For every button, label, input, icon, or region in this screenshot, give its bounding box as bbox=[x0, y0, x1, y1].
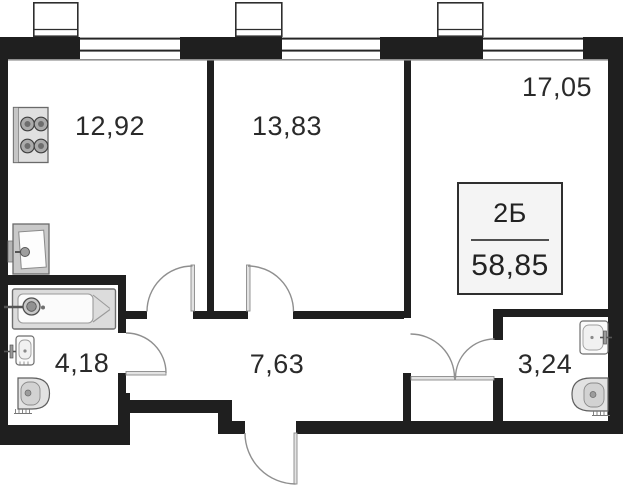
wall bbox=[118, 275, 126, 333]
vent-box-icon bbox=[34, 3, 78, 36]
living-room-door bbox=[411, 334, 455, 380]
apartment-total-area: 58,85 bbox=[459, 251, 561, 281]
wall bbox=[493, 309, 623, 317]
wall bbox=[380, 37, 483, 59]
vent-box-icon bbox=[236, 3, 282, 36]
wall bbox=[193, 311, 248, 319]
stove-icon bbox=[14, 108, 49, 163]
info-box-divider bbox=[471, 239, 549, 241]
wall bbox=[0, 37, 80, 59]
entrance-door bbox=[245, 433, 297, 484]
area-label-hallway: 7,63 bbox=[225, 351, 329, 378]
window-sill-line bbox=[8, 59, 608, 61]
wc-door bbox=[456, 339, 495, 380]
wall bbox=[608, 37, 623, 434]
area-label-living-room: 17,05 bbox=[505, 74, 609, 101]
kitchen-door bbox=[147, 265, 195, 312]
area-label-bedroom: 13,83 bbox=[235, 113, 339, 140]
wall bbox=[180, 37, 282, 59]
floor-plan: 12,92 13,83 17,05 4,18 7,63 3,24 2Б 58,8… bbox=[0, 0, 623, 489]
wall bbox=[403, 373, 411, 421]
bedroom-door bbox=[247, 265, 294, 312]
vent-boxes-layer bbox=[34, 3, 483, 36]
wall bbox=[493, 378, 503, 421]
wall bbox=[0, 37, 8, 445]
wall bbox=[218, 413, 232, 434]
wall bbox=[126, 400, 232, 413]
wall bbox=[493, 309, 503, 340]
windows-layer bbox=[8, 37, 608, 61]
wall bbox=[207, 59, 214, 318]
area-label-wc: 3,24 bbox=[493, 351, 597, 378]
wall bbox=[404, 59, 411, 318]
bathtub-icon bbox=[4, 289, 116, 329]
wall bbox=[232, 421, 245, 434]
vent-box-icon bbox=[438, 3, 483, 36]
kitchen-sink-icon bbox=[8, 224, 49, 274]
wall bbox=[0, 275, 126, 285]
wall bbox=[293, 311, 404, 319]
window-icon bbox=[282, 37, 380, 59]
wc-toilet-icon bbox=[572, 378, 610, 416]
apartment-info-box: 2Б 58,85 bbox=[457, 182, 563, 295]
apartment-type-label: 2Б bbox=[459, 200, 561, 227]
wall bbox=[296, 421, 623, 434]
wall bbox=[0, 425, 130, 445]
wc-washbasin-icon bbox=[580, 321, 612, 354]
area-label-kitchen: 12,92 bbox=[58, 113, 162, 140]
area-label-bathroom: 4,18 bbox=[30, 350, 134, 377]
wall bbox=[126, 311, 147, 319]
window-icon bbox=[80, 37, 180, 59]
toilet-icon bbox=[14, 378, 50, 414]
window-icon bbox=[483, 37, 583, 59]
